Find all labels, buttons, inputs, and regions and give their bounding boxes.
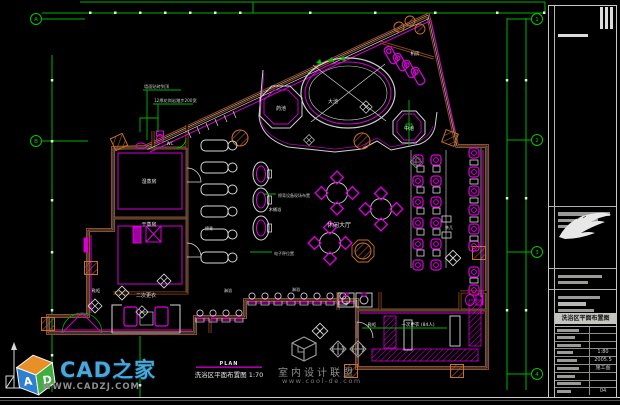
caption-title: 洗浴区平面布置图 1:70	[195, 370, 264, 379]
table-row	[555, 381, 616, 388]
label-shower-left: 淋浴	[224, 287, 232, 293]
site-logo-cube-icon: A D	[16, 354, 58, 400]
label-shower-right: 淋浴	[292, 286, 300, 292]
title-block: 洗浴区平面布置图 1:80 2005.5 施工图 04	[548, 5, 617, 398]
table-row	[555, 342, 616, 349]
titleblock-table: 1:80 2005.5 施工图 04	[555, 326, 616, 395]
divider	[549, 206, 616, 207]
label-medium-pool: 中池	[404, 125, 414, 132]
site-logo-url: WWW.CADZJ.COM	[42, 382, 140, 392]
annotation-scrub-note: 擦背设备现场布置	[278, 192, 310, 198]
label-scrub-bed: 擦背	[205, 225, 213, 231]
titleblock-text-bar	[558, 275, 602, 278]
table-row	[555, 373, 616, 380]
label-tea-table: 茶几	[445, 224, 453, 230]
grid-bubble-label: 2	[535, 138, 539, 144]
table-row-stage: 施工图	[555, 365, 616, 373]
table-row-date: 2005.5	[555, 357, 616, 365]
titleblock-drawing-title: 洗浴区平面布置图	[555, 313, 616, 324]
project-info-section	[555, 272, 616, 284]
annotation-wall-note: 墙面贴砖到顶	[144, 83, 170, 90]
fold-marks	[600, 7, 613, 29]
divider	[549, 268, 616, 269]
label-shoe-cabinet-right: 鞋柜	[368, 321, 376, 328]
building-walls	[48, 15, 487, 368]
lounge-pairs-right	[411, 150, 451, 270]
watermark-url: www.cool-de.com	[282, 377, 362, 385]
drawing-info-section	[555, 293, 616, 312]
label-wc: WC	[167, 141, 174, 146]
label-herb-pool: 药池	[276, 105, 286, 112]
label-wet-steam-room: 湿蒸房	[141, 178, 156, 185]
changing-bench	[112, 305, 180, 333]
plan-caption: PLAN 洗浴区平面布置图 1:70	[195, 361, 264, 379]
label-leisure-hall: 休闲大厅	[327, 221, 351, 229]
pool-area	[259, 56, 437, 262]
grid-bubble-label: A	[34, 17, 38, 23]
label-wood-tub: 木桶浴	[269, 206, 282, 213]
titleblock-text-bar	[558, 309, 594, 312]
forum-watermark: 室内设计联盟 www.cool-de.com	[274, 336, 384, 390]
label-dry-steam-room: 干蒸房	[141, 221, 156, 228]
divider	[549, 289, 616, 290]
grid-bubble-label: B	[34, 139, 38, 145]
titleblock-scale-value: 1:80	[590, 349, 616, 356]
label-machine-room: 机房	[411, 50, 420, 57]
titleblock-text-bar	[558, 296, 600, 299]
annotation-scale-note: 电子秤位置	[274, 250, 294, 256]
watermark-arrow-diamond-icon	[330, 341, 346, 357]
table-row	[555, 327, 616, 334]
massage-beds	[201, 140, 237, 263]
titleblock-text-bar	[558, 281, 588, 284]
label-second-changing: 二次更衣	[136, 292, 156, 299]
table-row	[555, 334, 616, 341]
company-logo-swoosh	[555, 209, 615, 243]
company-logo-section	[555, 209, 616, 228]
lounge-chairs-top	[383, 45, 426, 86]
title-block-header-bar	[558, 34, 588, 37]
site-logo-name: CAD之家	[60, 354, 156, 384]
grid-bubble-label: 1	[535, 17, 539, 23]
label-shoe-cabinet-left: 鞋柜	[92, 287, 100, 294]
titleblock-text-bar	[558, 302, 586, 306]
table-row-scale: 1:80	[555, 349, 616, 357]
caption-underline	[196, 367, 262, 368]
watermark-icons	[274, 336, 384, 362]
titleblock-date-value: 2005.5	[590, 357, 616, 364]
site-logo: A D CAD之家 WWW.CADZJ.COM	[16, 352, 166, 402]
table-row-sheet: 04	[555, 388, 616, 395]
grid-bubble-label: 4	[535, 372, 539, 378]
door-arcs	[62, 138, 373, 338]
cad-drawing-canvas[interactable]: A B 1 2 3 4	[0, 0, 620, 405]
titleblock-stage-value: 施工图	[590, 365, 616, 372]
wall-chairs-right	[469, 148, 481, 297]
wood-tub-tables	[253, 162, 272, 240]
caption-plan-word: PLAN	[220, 361, 239, 367]
watermark-cube-icon	[292, 337, 316, 361]
titleblock-sheet-value: 04	[590, 388, 616, 395]
label-big-pool: 大池	[328, 98, 338, 105]
watermark-arrow-diamond-icon	[350, 341, 366, 357]
annotation-step-note: 12厚花岗岩踏步200宽	[154, 97, 197, 104]
label-first-changing: 一次更衣 (84人)	[401, 321, 434, 328]
grid-bubble-label: 3	[535, 250, 539, 256]
